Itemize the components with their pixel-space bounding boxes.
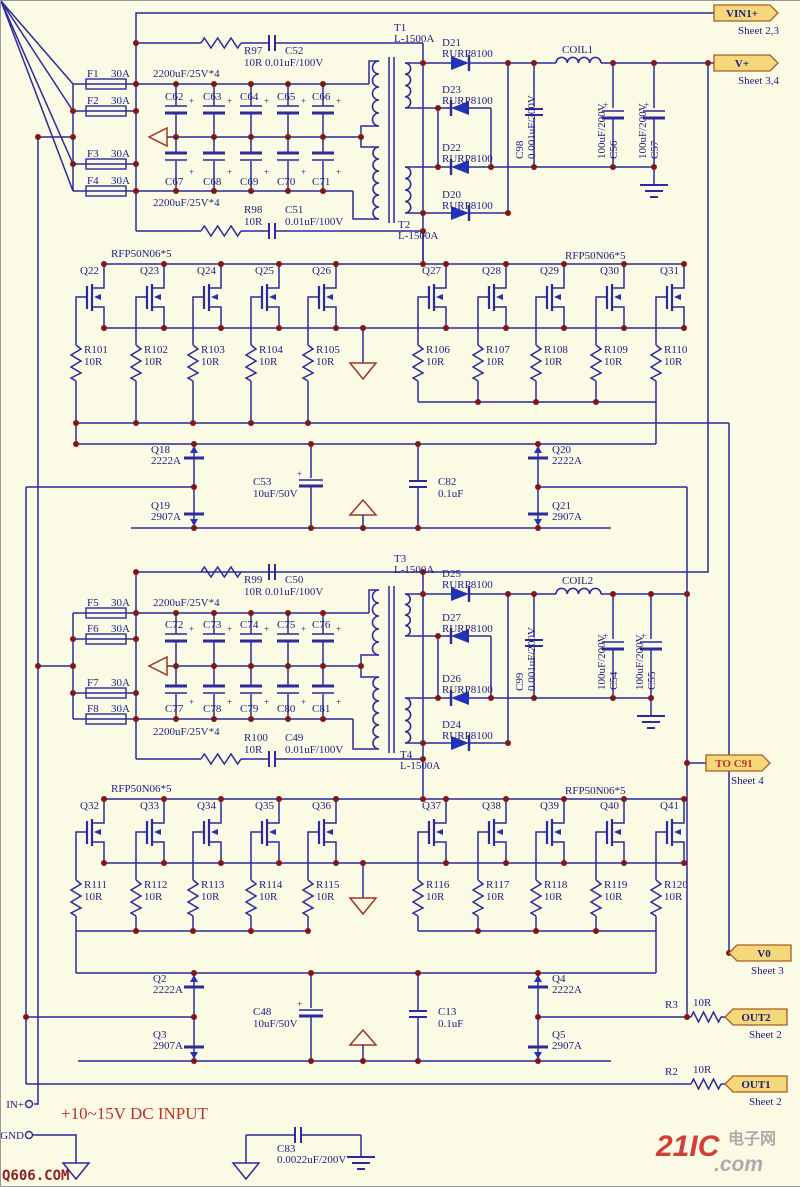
- plus-sign: +: [189, 167, 194, 177]
- label-filter_caps-5-ref: C55: [646, 671, 658, 690]
- label-bank-note-3: 2200uF/25V*4: [153, 726, 220, 738]
- label-bank_caps-9: C71: [312, 176, 330, 188]
- plus-sign: +: [301, 167, 306, 177]
- flag-2[interactable]: TO C91: [715, 758, 752, 770]
- watermark-left: Q606.COM: [2, 1168, 69, 1184]
- label-driver_transistors-4-value: 2222A: [153, 984, 183, 996]
- label-fuses-7-ref: F8: [87, 703, 99, 715]
- label-rectifier_diodes-2-value: RURP8100: [442, 153, 493, 165]
- label-driver_caps-3-ref: C13: [438, 1006, 457, 1018]
- label-fuses-6-ref: F7: [87, 677, 99, 689]
- label-fuses-7-value: 30A: [111, 703, 130, 715]
- label-gate_resistors-10-value: 10R: [84, 891, 103, 903]
- flag-1[interactable]: V+: [735, 58, 749, 70]
- label-snubbers-3-c: C49: [285, 732, 304, 744]
- flag-4[interactable]: OUT2: [741, 1012, 771, 1024]
- plus-sign: +: [297, 999, 302, 1009]
- label-gate_resistors-6-ref: R107: [486, 344, 510, 356]
- label-mosfets-2: Q24: [197, 265, 216, 277]
- label-gate_resistors-11-ref: R112: [144, 879, 167, 891]
- label-bank_caps-8: C70: [277, 176, 296, 188]
- plus-sign: +: [227, 697, 232, 707]
- label-fuses-0-value: 30A: [111, 68, 130, 80]
- label-fuses-0-ref: F1: [87, 68, 99, 80]
- label-gate_resistors-15-value: 10R: [426, 891, 445, 903]
- label-bank_caps-15: C77: [165, 703, 184, 715]
- label-mosfets-0: Q22: [80, 265, 99, 277]
- label-mosfets-16: Q38: [482, 800, 501, 812]
- plus-sign: +: [603, 100, 608, 110]
- label-output_resistors-1-ref: R2: [665, 1066, 678, 1078]
- label-transformers-3-value: L-1500A: [400, 760, 440, 772]
- plus-sign: +: [264, 624, 269, 634]
- terminal-in-plus: IN+: [6, 1099, 24, 1111]
- label-gate_resistors-6-value: 10R: [486, 356, 505, 368]
- label-filter_caps-5-value: 100uF/200V: [634, 634, 646, 690]
- label-gate_resistors-0-value: 10R: [84, 356, 103, 368]
- label-gate_resistors-2-value: 10R: [201, 356, 220, 368]
- label-gate_resistors-16-value: 10R: [486, 891, 505, 903]
- label-bank_caps-12: C74: [240, 619, 259, 631]
- label-coils-1: COIL2: [562, 575, 593, 587]
- label-gate_resistors-13-ref: R114: [259, 879, 283, 891]
- label-fuses-4-value: 30A: [111, 597, 130, 609]
- label-gate_resistors-7-ref: R108: [544, 344, 568, 356]
- label-rectifier_diodes-5-value: RURP8100: [442, 623, 493, 635]
- label-filter_caps-4-ref: C54: [608, 671, 620, 690]
- label-driver_caps-2-ref: C48: [253, 1006, 272, 1018]
- schematic-canvas: F130AF230AF330AF430AF530AF630AF730AF830A…: [1, 1, 800, 1186]
- label-driver_transistors-0-value: 2222A: [151, 455, 181, 467]
- label-mosfet-group-1: RFP50N06*5: [565, 250, 626, 262]
- label-mosfets-15: Q37: [422, 800, 441, 812]
- label-filter_caps-3-ref: C99: [514, 672, 526, 691]
- label-gate_resistors-1-value: 10R: [144, 356, 163, 368]
- flag-5[interactable]: OUT1: [741, 1079, 770, 1091]
- label-snubbers-1-r_value: 10R: [244, 216, 263, 228]
- label-driver_transistors-6-value: 2222A: [552, 984, 582, 996]
- label-gate_resistors-17-value: 10R: [544, 891, 563, 903]
- label-gate_resistors-18-ref: R119: [604, 879, 628, 891]
- label-filter_caps-1-ref: C56: [608, 140, 620, 159]
- label-snubbers-2-c: C50: [285, 574, 304, 586]
- plus-sign: +: [227, 624, 232, 634]
- label-gate_resistors-7-value: 10R: [544, 356, 563, 368]
- flag-sheet-5[interactable]: Sheet 2: [749, 1096, 782, 1108]
- label-transformers-0-value: L-1500A: [394, 33, 434, 45]
- plus-sign: +: [227, 167, 232, 177]
- terminal-gnd: GND: [1, 1130, 24, 1142]
- label-gate_resistors-12-ref: R113: [201, 879, 225, 891]
- label-bank-note-1: 2200uF/25V*4: [153, 197, 220, 209]
- label-mosfets-13: Q35: [255, 800, 274, 812]
- label-driver_caps-2-value: 10uF/50V: [253, 1018, 298, 1030]
- label-filter_caps-3-value: 0.001uF/200V: [526, 627, 538, 691]
- plus-sign: +: [336, 167, 341, 177]
- plus-sign: +: [641, 631, 646, 641]
- label-gate_resistors-8-ref: R109: [604, 344, 628, 356]
- label-mosfet-group-2: RFP50N06*5: [111, 783, 172, 795]
- label-coils-0: COIL1: [562, 44, 593, 56]
- label-driver_caps-1-value: 0.1uF: [438, 488, 463, 500]
- label-mosfets-4: Q26: [312, 265, 331, 277]
- label-gate_resistors-14-ref: R115: [316, 879, 340, 891]
- label-driver_transistors-5-value: 2907A: [153, 1040, 183, 1052]
- label-fuses-5-ref: F6: [87, 623, 99, 635]
- label-gate_resistors-0-ref: R101: [84, 344, 108, 356]
- label-snubbers-0-c_value: 0.01uF/100V: [265, 57, 323, 69]
- label-bank_caps-6: C68: [203, 176, 222, 188]
- flag-0[interactable]: VIN1+: [726, 8, 758, 20]
- label-gate_resistors-16-ref: R117: [486, 879, 510, 891]
- label-fuses-5-value: 30A: [111, 623, 130, 635]
- label-mosfets-7: Q29: [540, 265, 559, 277]
- label-gate_resistors-11-value: 10R: [144, 891, 163, 903]
- label-bank_caps-2: C64: [240, 91, 259, 103]
- label-fuses-2-ref: F3: [87, 148, 99, 160]
- label-rectifier_diodes-7-value: RURP8100: [442, 730, 493, 742]
- flag-sheet-4[interactable]: Sheet 2: [749, 1029, 782, 1041]
- label-bank_caps-19: C81: [312, 703, 330, 715]
- label-input_cap-value: 0.0022uF/200V: [277, 1154, 346, 1166]
- plus-sign: +: [264, 96, 269, 106]
- label-snubbers-0-r: R97: [244, 45, 263, 57]
- label-bank_caps-0: C62: [165, 91, 183, 103]
- label-driver_transistors-1-value: 2907A: [151, 511, 181, 523]
- label-gate_resistors-19-value: 10R: [664, 891, 683, 903]
- label-fuses-1-value: 30A: [111, 95, 130, 107]
- plus-sign: +: [264, 697, 269, 707]
- label-snubbers-1-r: R98: [244, 204, 263, 216]
- label-fuses-3-value: 30A: [111, 175, 130, 187]
- label-fuses-3-ref: F4: [87, 175, 99, 187]
- label-rectifier_diodes-4-value: RURP8100: [442, 579, 493, 591]
- label-mosfets-8: Q30: [600, 265, 619, 277]
- label-bank_caps-13: C75: [277, 619, 296, 631]
- label-output_resistors-1-value: 10R: [693, 1064, 712, 1076]
- plus-sign: +: [264, 167, 269, 177]
- label-filter_caps-0-ref: C98: [514, 140, 526, 159]
- label-gate_resistors-10-ref: R111: [84, 879, 107, 891]
- label-gate_resistors-9-value: 10R: [664, 356, 683, 368]
- label-driver_caps-1-ref: C82: [438, 476, 456, 488]
- label-gate_resistors-5-ref: R106: [426, 344, 450, 356]
- label-fuses-6-value: 30A: [111, 677, 130, 689]
- label-gate_resistors-2-ref: R103: [201, 344, 225, 356]
- label-driver_transistors-3-value: 2907A: [552, 511, 582, 523]
- label-bank_caps-1: C63: [203, 91, 222, 103]
- plus-sign: +: [336, 96, 341, 106]
- label-transformers-2-value: L-1500A: [394, 564, 434, 576]
- label-mosfets-1: Q23: [140, 265, 159, 277]
- logo-21ic: 21IC: [655, 1130, 721, 1163]
- label-snubbers-3-c_value: 0.01uF/100V: [285, 744, 343, 756]
- label-bank_caps-3: C65: [277, 91, 296, 103]
- label-fuses-1-ref: F2: [87, 95, 99, 107]
- label-bank-note-2: 2200uF/25V*4: [153, 597, 220, 609]
- schematic-page: F130AF230AF330AF430AF530AF630AF730AF830A…: [0, 0, 800, 1187]
- flag-sheet-2[interactable]: Sheet 4: [731, 775, 764, 787]
- label-gate_resistors-9-ref: R110: [664, 344, 688, 356]
- label-bank_caps-18: C80: [277, 703, 296, 715]
- label-mosfets-11: Q33: [140, 800, 159, 812]
- label-rectifier_diodes-1-value: RURP8100: [442, 95, 493, 107]
- label-gate_resistors-1-ref: R102: [144, 344, 168, 356]
- label-snubbers-3-r: R100: [244, 732, 268, 744]
- label-filter_caps-1-value: 100uF/200V: [596, 103, 608, 159]
- plus-sign: +: [336, 624, 341, 634]
- plus-sign: +: [301, 624, 306, 634]
- label-fuses-4-ref: F5: [87, 597, 99, 609]
- logo-cn: 电子网: [728, 1129, 776, 1148]
- label-mosfets-17: Q39: [540, 800, 559, 812]
- label-driver_transistors-7-value: 2907A: [552, 1040, 582, 1052]
- plus-sign: +: [336, 697, 341, 707]
- label-driver_caps-3-value: 0.1uF: [438, 1018, 463, 1030]
- label-driver_caps-0-ref: C53: [253, 476, 272, 488]
- label-gate_resistors-12-value: 10R: [201, 891, 220, 903]
- flag-sheet-0[interactable]: Sheet 2,3: [738, 25, 779, 37]
- label-gate_resistors-4-ref: R105: [316, 344, 340, 356]
- label-snubbers-1-c_value: 0.01uF/100V: [285, 216, 343, 228]
- label-mosfet-group-3: RFP50N06*5: [565, 785, 626, 797]
- label-filter_caps-2-value: 100uF/200V: [637, 103, 649, 159]
- label-gate_resistors-5-value: 10R: [426, 356, 445, 368]
- label-gate_resistors-8-value: 10R: [604, 356, 623, 368]
- label-snubbers-3-r_value: 10R: [244, 744, 263, 756]
- label-filter_caps-0-value: 0.001uF/200V: [526, 95, 538, 159]
- plus-sign: +: [301, 96, 306, 106]
- label-gate_resistors-15-ref: R116: [426, 879, 450, 891]
- plus-sign: +: [189, 624, 194, 634]
- label-mosfets-3: Q25: [255, 265, 274, 277]
- label-snubbers-1-c: C51: [285, 204, 303, 216]
- label-bank_caps-10: C72: [165, 619, 183, 631]
- plus-sign: +: [301, 697, 306, 707]
- plus-sign: +: [189, 96, 194, 106]
- label-snubbers-0-r_value: 10R: [244, 57, 263, 69]
- label-mosfets-19: Q41: [660, 800, 679, 812]
- label-bank_caps-11: C73: [203, 619, 222, 631]
- plus-sign: +: [227, 96, 232, 106]
- label-mosfets-9: Q31: [660, 265, 679, 277]
- label-bank_caps-7: C69: [240, 176, 259, 188]
- label-mosfet-group-0: RFP50N06*5: [111, 248, 172, 260]
- label-rectifier_diodes-0-value: RURP8100: [442, 48, 493, 60]
- label-mosfets-10: Q32: [80, 800, 99, 812]
- label-mosfets-14: Q36: [312, 800, 331, 812]
- label-rectifier_diodes-3-value: RURP8100: [442, 200, 493, 212]
- label-mosfets-5: Q27: [422, 265, 441, 277]
- label-bank_caps-16: C78: [203, 703, 222, 715]
- label-gate_resistors-4-value: 10R: [316, 356, 335, 368]
- label-gate_resistors-3-value: 10R: [259, 356, 278, 368]
- plus-sign: +: [189, 697, 194, 707]
- label-bank_caps-4: C66: [312, 91, 331, 103]
- plus-sign: +: [644, 100, 649, 110]
- label-snubbers-0-c: C52: [285, 45, 303, 57]
- plus-sign: +: [297, 469, 302, 479]
- label-gate_resistors-19-ref: R120: [664, 879, 688, 891]
- label-filter_caps-2-ref: C57: [649, 140, 661, 159]
- label-snubbers-2-c_value: 0.01uF/100V: [265, 586, 323, 598]
- dc-input-note: +10~15V DC INPUT: [61, 1104, 209, 1123]
- label-mosfets-6: Q28: [482, 265, 501, 277]
- label-rectifier_diodes-6-value: RURP8100: [442, 684, 493, 696]
- flag-sheet-3[interactable]: Sheet 3: [751, 965, 784, 977]
- label-bank-note-0: 2200uF/25V*4: [153, 68, 220, 80]
- label-gate_resistors-17-ref: R118: [544, 879, 568, 891]
- label-snubbers-2-r_value: 10R: [244, 586, 263, 598]
- label-mosfets-12: Q34: [197, 800, 216, 812]
- logo-com: .com: [714, 1153, 763, 1176]
- label-snubbers-2-r: R99: [244, 574, 263, 586]
- label-gate_resistors-14-value: 10R: [316, 891, 335, 903]
- label-output_resistors-0-value: 10R: [693, 997, 712, 1009]
- label-output_resistors-0-ref: R3: [665, 999, 678, 1011]
- label-bank_caps-5: C67: [165, 176, 184, 188]
- flag-3[interactable]: V0: [757, 948, 771, 960]
- label-mosfets-18: Q40: [600, 800, 619, 812]
- label-filter_caps-4-value: 100uF/200V: [596, 634, 608, 690]
- label-transformers-1-value: L-1500A: [398, 230, 438, 242]
- label-fuses-2-value: 30A: [111, 148, 130, 160]
- label-gate_resistors-18-value: 10R: [604, 891, 623, 903]
- label-gate_resistors-3-ref: R104: [259, 344, 283, 356]
- plus-sign: +: [603, 631, 608, 641]
- label-bank_caps-14: C76: [312, 619, 331, 631]
- label-gate_resistors-13-value: 10R: [259, 891, 278, 903]
- label-driver_caps-0-value: 10uF/50V: [253, 488, 298, 500]
- flag-sheet-1[interactable]: Sheet 3,4: [738, 75, 779, 87]
- label-bank_caps-17: C79: [240, 703, 259, 715]
- label-driver_transistors-2-value: 2222A: [552, 455, 582, 467]
